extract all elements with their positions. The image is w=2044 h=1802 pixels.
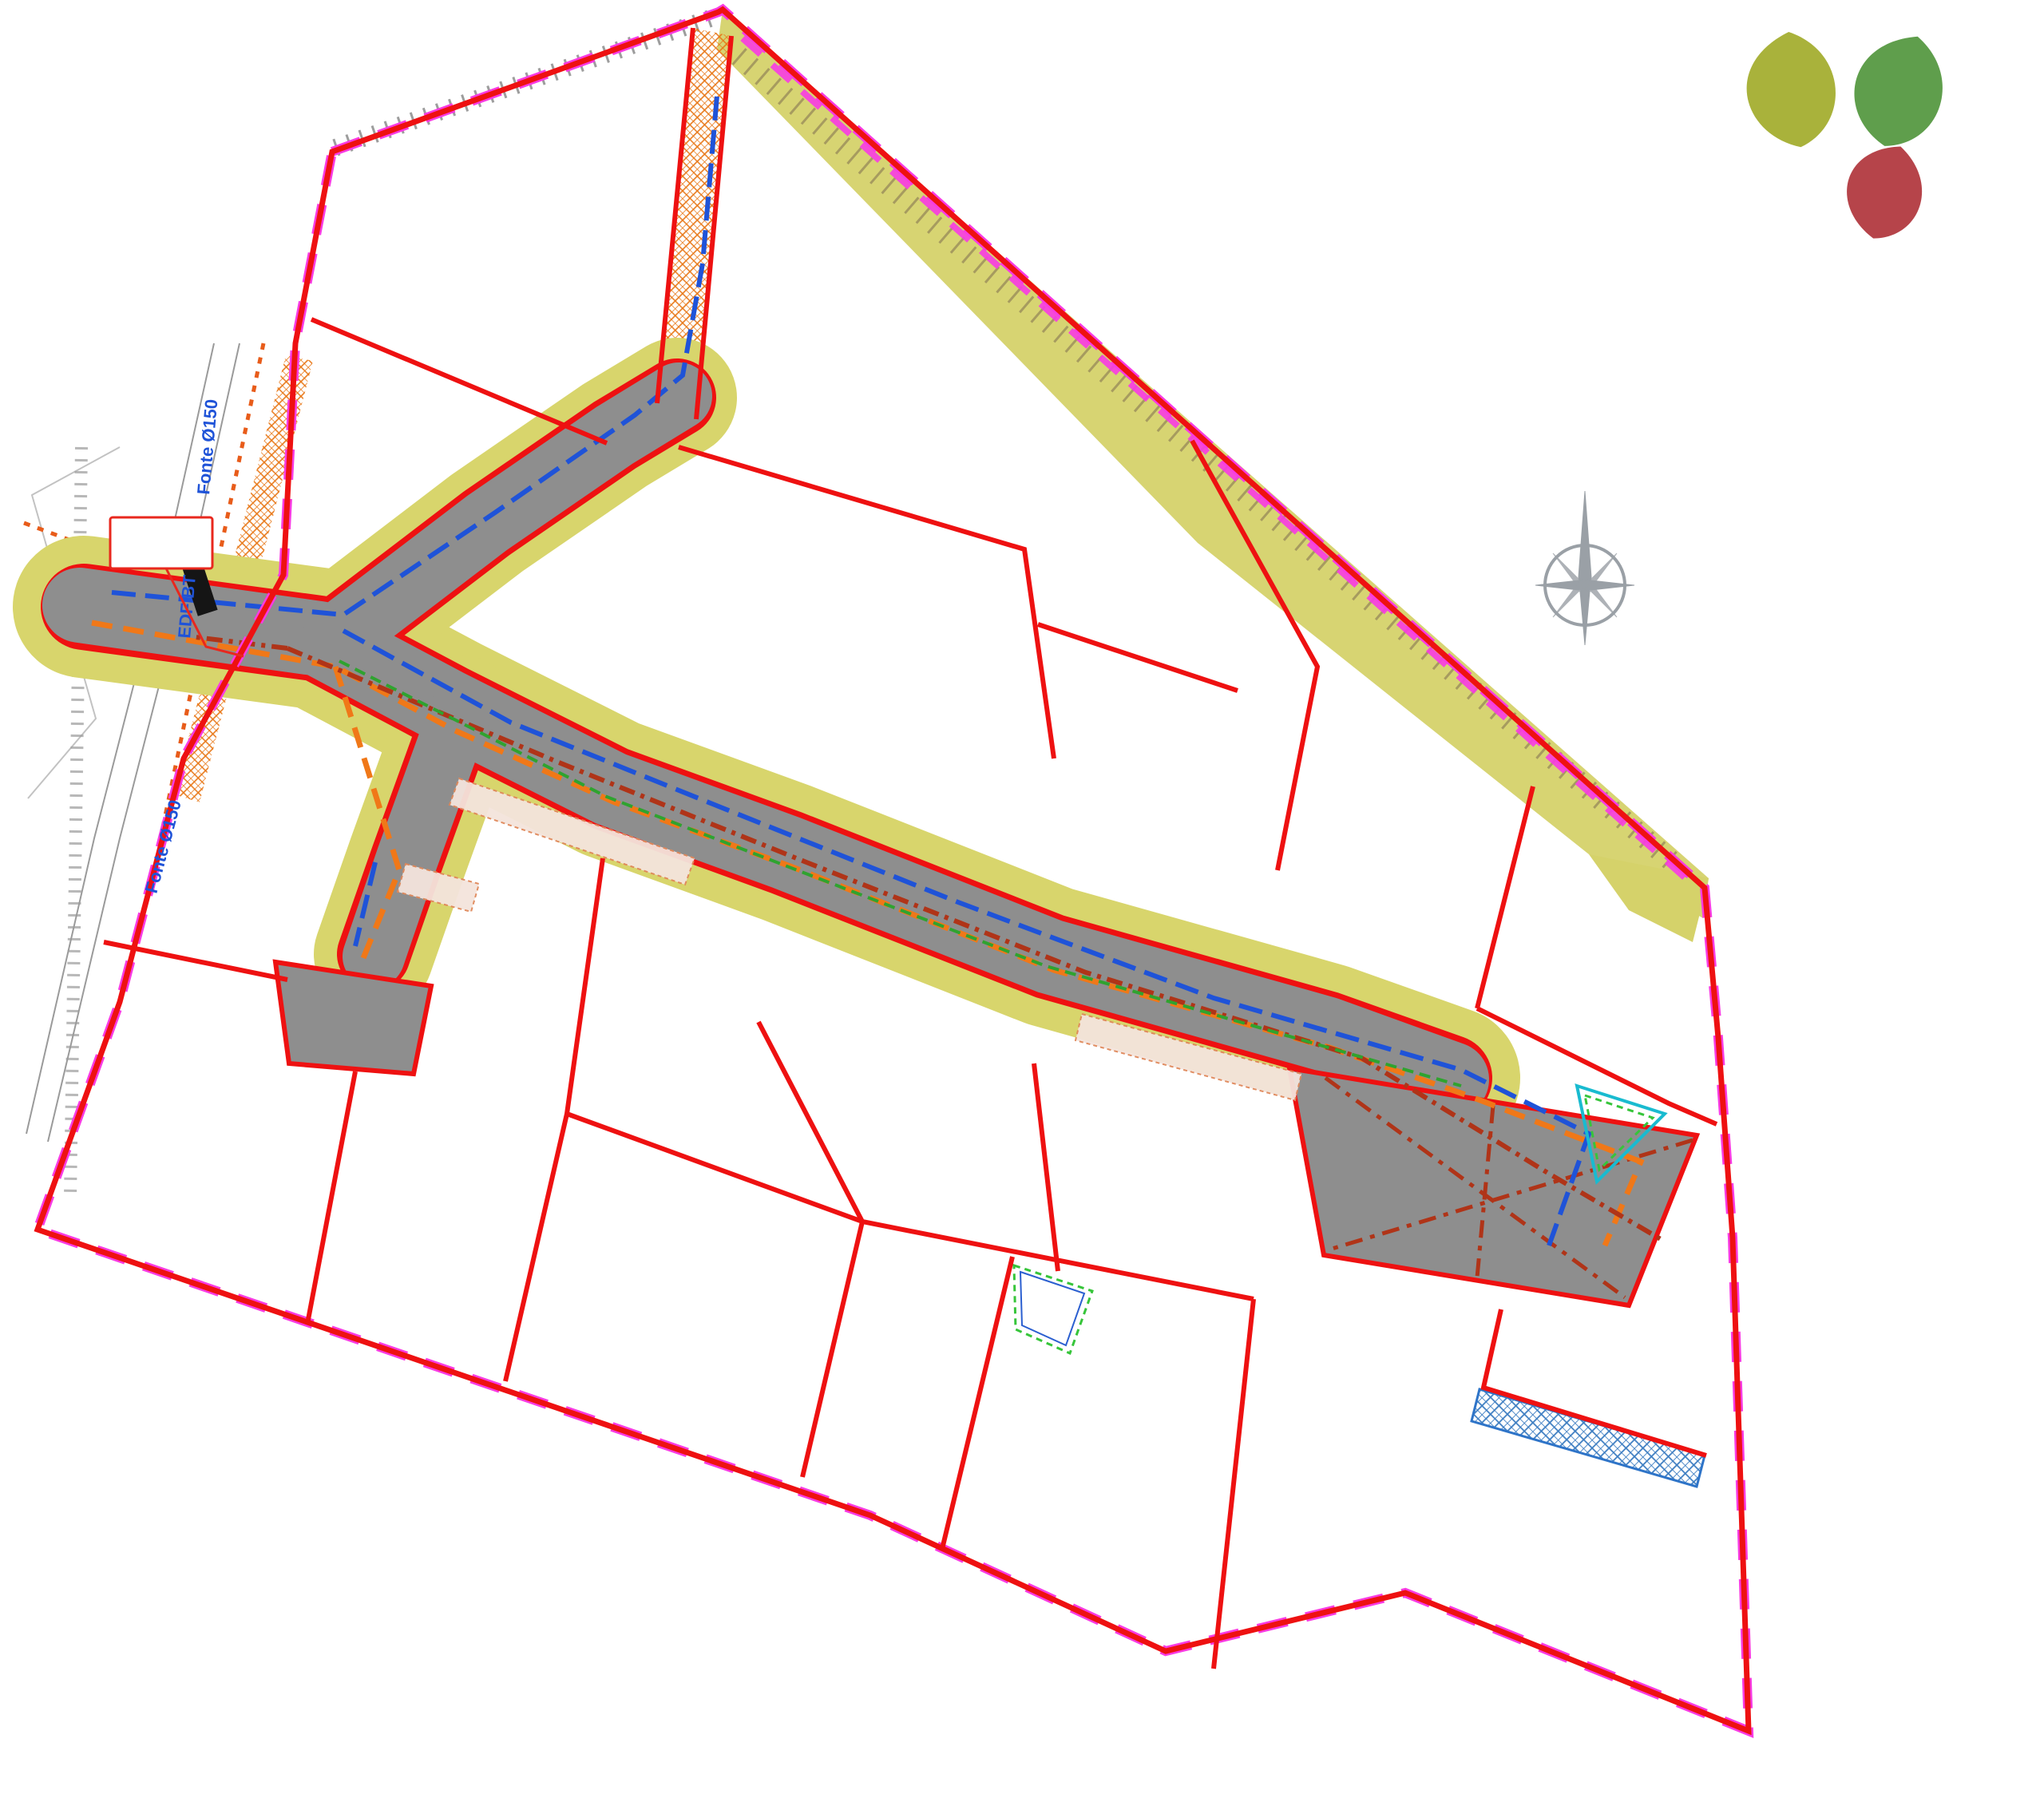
lpa-logo (1739, 25, 1955, 249)
plan-des-travaux-page: { "title": {"line1": "ZAE «LA BELLERIE»"… (0, 0, 2044, 1802)
compass-rose-icon (1535, 491, 1634, 645)
site-plan-canvas: Fonte Ø150 EDF BT Fonte Ø150 (0, 0, 2044, 1802)
svg-text:Fonte Ø150: Fonte Ø150 (141, 798, 185, 895)
lpa-leaves-icon (1739, 25, 1955, 249)
svg-text:Fonte Ø150: Fonte Ø150 (193, 398, 221, 496)
